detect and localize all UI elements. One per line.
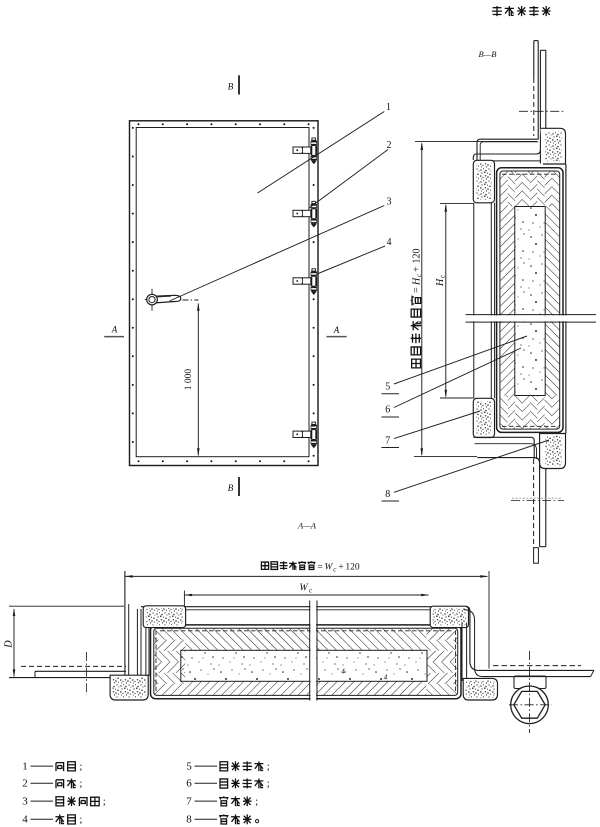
svg-text:1: 1 (386, 102, 391, 113)
svg-text:;: ; (267, 761, 270, 773)
svg-text:120: 120 (345, 563, 360, 573)
svg-text:3: 3 (22, 796, 28, 808)
svg-text:1 000: 1 000 (184, 369, 194, 391)
svg-text:;: ; (267, 778, 270, 790)
svg-text:120: 120 (412, 249, 423, 264)
svg-text:D: D (4, 640, 15, 649)
svg-text:5: 5 (385, 382, 390, 393)
svg-text:7: 7 (186, 796, 192, 808)
svg-text:6: 6 (186, 778, 192, 790)
svg-text:A—A: A—A (297, 521, 317, 531)
svg-text:W: W (325, 563, 334, 573)
svg-text:6: 6 (385, 405, 390, 416)
svg-text:B—B: B—B (479, 49, 497, 59)
svg-text:H: H (412, 277, 423, 286)
svg-text:8: 8 (186, 814, 192, 826)
svg-text:3: 3 (387, 197, 392, 208)
svg-text:H: H (435, 278, 446, 287)
svg-text:A: A (111, 325, 118, 335)
svg-text:5: 5 (186, 761, 192, 773)
svg-text:4: 4 (341, 668, 345, 676)
svg-text:=: = (317, 563, 322, 573)
svg-text:A: A (333, 325, 340, 335)
svg-text:2: 2 (387, 140, 392, 151)
svg-text:B: B (228, 82, 234, 92)
svg-text:+: + (412, 266, 423, 272)
svg-text:1: 1 (22, 761, 28, 773)
svg-text:;: ; (103, 796, 106, 808)
svg-text:4: 4 (384, 674, 388, 682)
svg-text:;: ; (79, 761, 82, 773)
svg-text:4: 4 (22, 814, 28, 826)
svg-text:+: + (338, 563, 343, 573)
svg-text:=: = (412, 287, 423, 293)
svg-text:;: ; (255, 796, 258, 808)
svg-text:;: ; (79, 778, 82, 790)
svg-text:2: 2 (22, 778, 28, 790)
svg-text:8: 8 (385, 489, 390, 500)
svg-text:;: ; (79, 814, 82, 826)
svg-text:7: 7 (385, 436, 390, 447)
svg-text:B: B (228, 483, 234, 493)
svg-text:4: 4 (387, 237, 392, 248)
